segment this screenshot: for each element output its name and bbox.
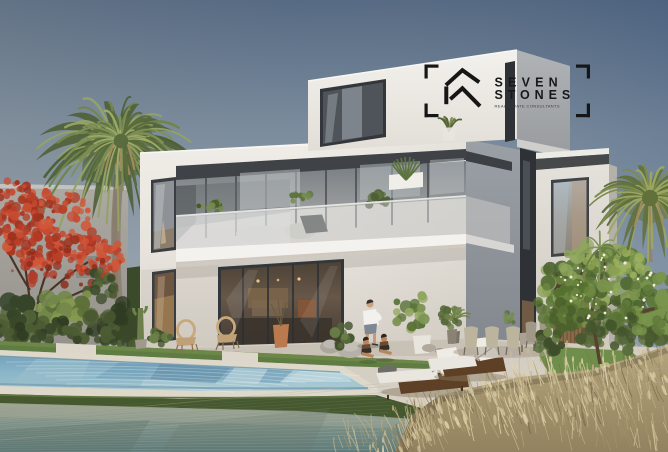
svg-text:STONES: STONES xyxy=(495,88,576,102)
svg-text:REAL ESTATE CONSULTANTS: REAL ESTATE CONSULTANTS xyxy=(495,104,560,109)
